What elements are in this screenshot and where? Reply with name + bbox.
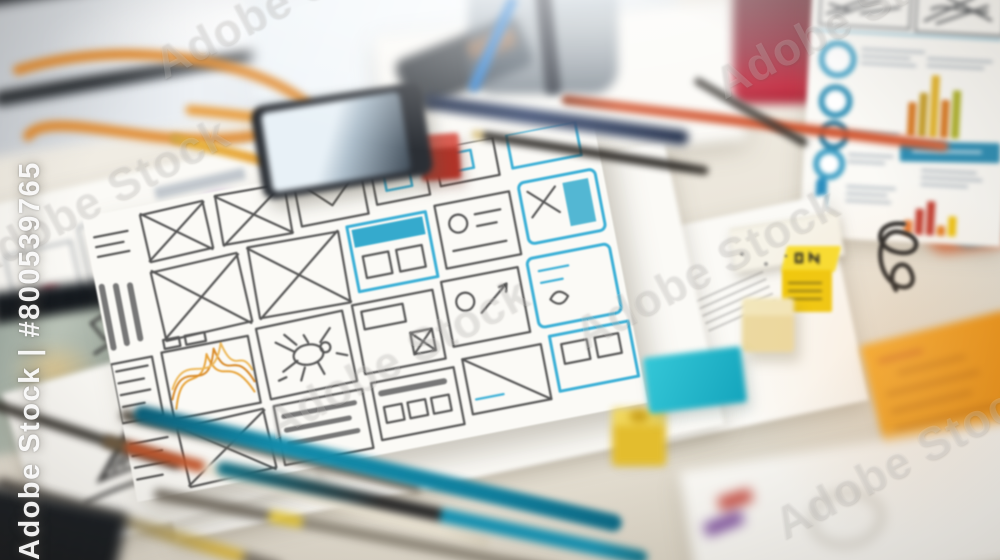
watermark-side-label: Adobe Stock | #800539765 bbox=[14, 0, 47, 560]
yellow-cube-glyphs bbox=[792, 250, 832, 266]
cream-cube bbox=[742, 298, 794, 352]
chart-legend-lines bbox=[926, 57, 996, 71]
stat-circle-2 bbox=[818, 83, 854, 119]
infographic-top-bar-chart bbox=[907, 70, 996, 140]
lego-cube-yellow bbox=[612, 408, 666, 466]
wire-clip bbox=[866, 218, 936, 310]
lego-stud bbox=[630, 410, 648, 422]
purple-swatch bbox=[703, 510, 745, 536]
bottom-chart-title-lines bbox=[920, 169, 985, 189]
smartphone-screen bbox=[261, 91, 412, 192]
infographic-sketch-right bbox=[914, 0, 1000, 37]
red-swatch bbox=[717, 488, 753, 510]
desk-scene: Adobe Stock Adobe Stock Adobe Stock Adob… bbox=[0, 0, 1000, 560]
stat-text-4 bbox=[847, 153, 895, 165]
stat-text-1 bbox=[860, 48, 927, 68]
stat-text-5 bbox=[845, 185, 898, 205]
teal-sticky-note bbox=[643, 346, 747, 414]
